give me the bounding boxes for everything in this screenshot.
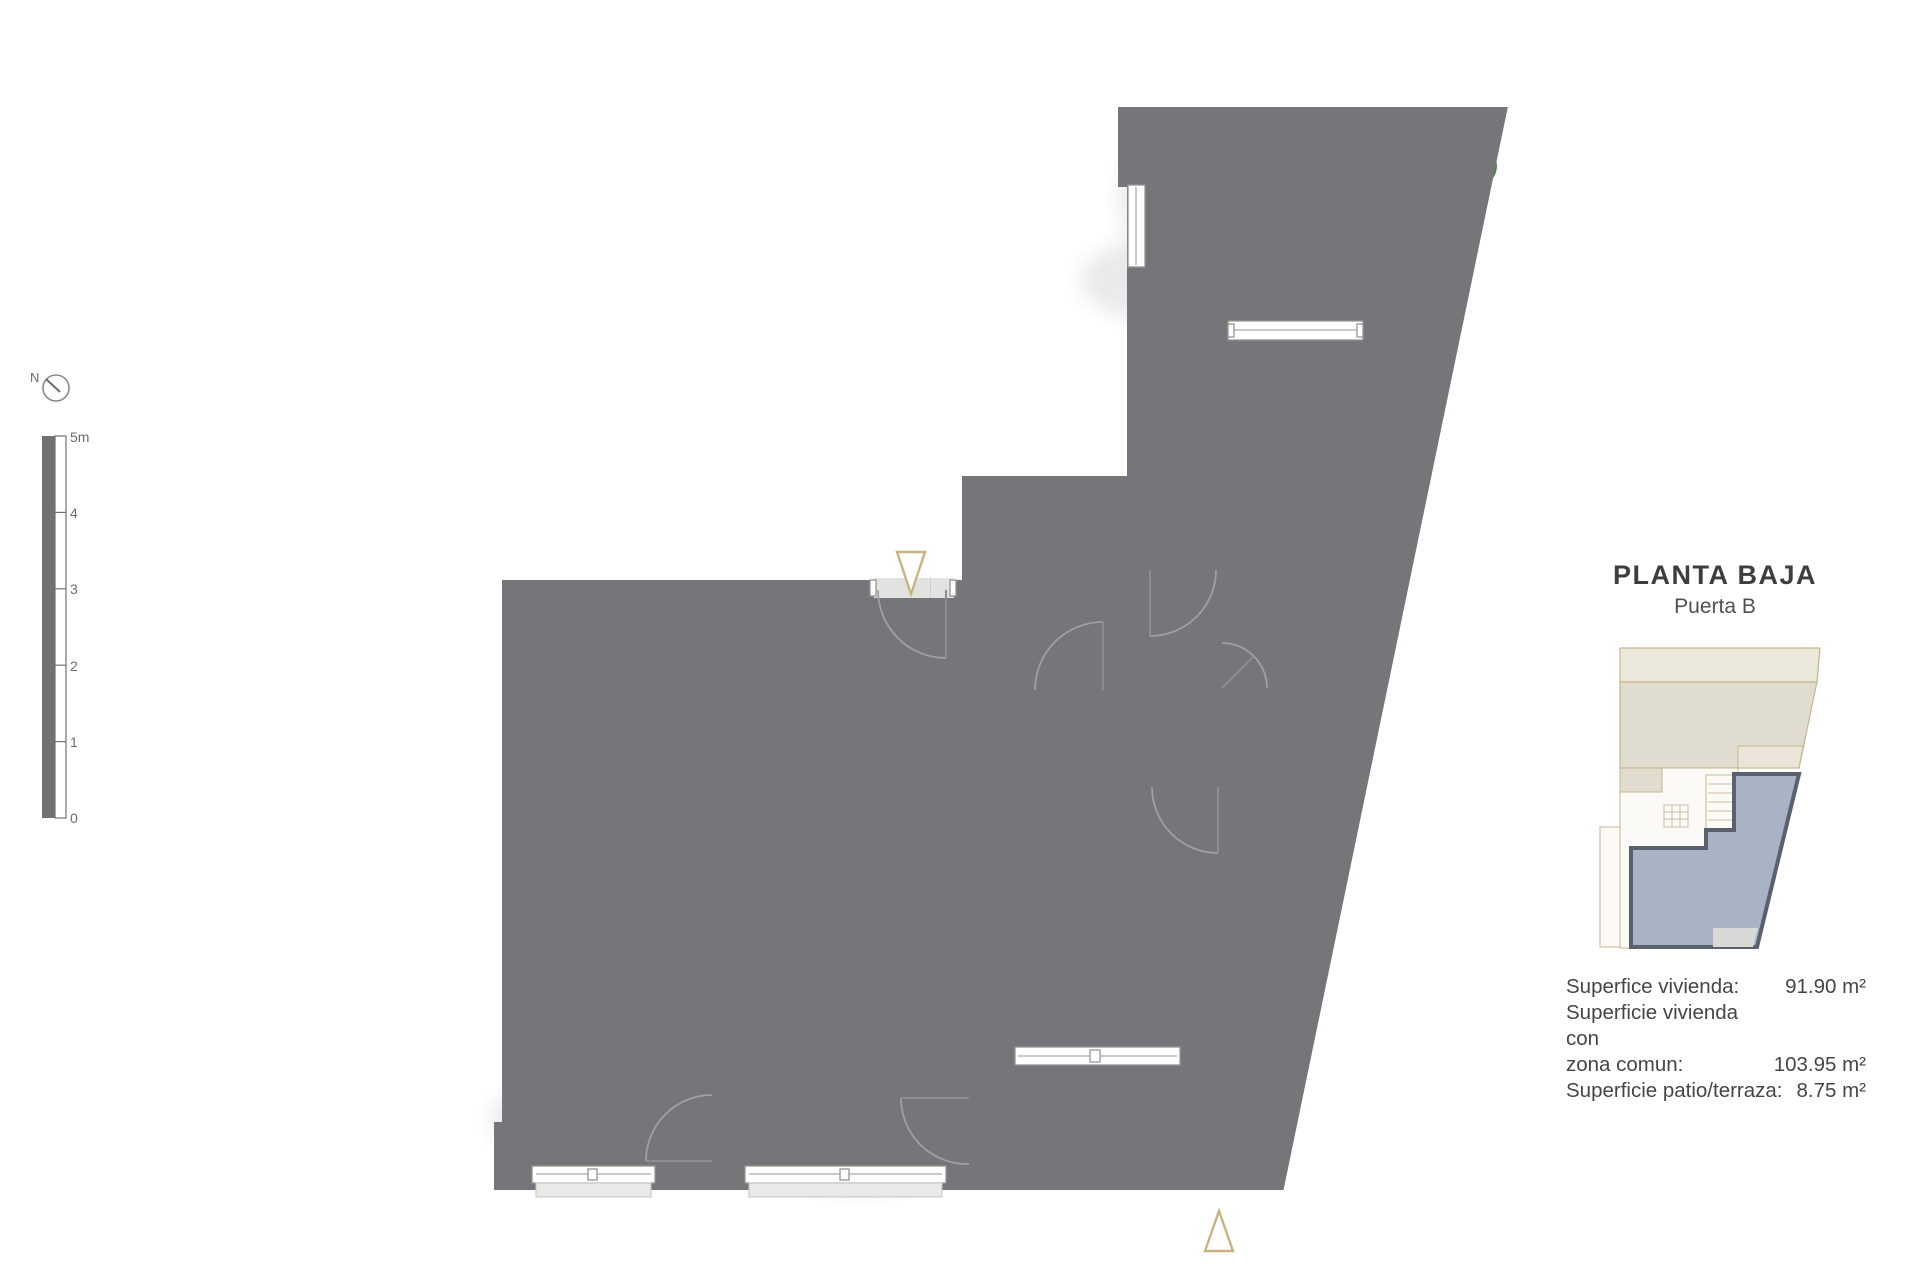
surface-row: Superficie vivienda con zona comun: 103.… [1566,1000,1866,1078]
plan-subtitle: Puerta B [1560,595,1870,619]
scale-tick-label: 3 [70,581,78,597]
bedroom2-right-wall [699,879,712,1095]
scale-tick-label: 1 [70,734,78,750]
walls [494,107,1498,1190]
living-master-divider [963,781,976,1050]
section-marker-icon [1205,1211,1233,1251]
scale-tick-label: 4 [70,505,78,521]
living-window [745,1166,946,1197]
north-compass: N [30,370,69,401]
surface-label-line2: zona comun: [1566,1052,1774,1078]
info-panel: PLANTA BAJA Puerta B [1560,560,1870,619]
bath2-bottom-wall [1216,784,1360,797]
surface-label: Superfice vivienda: [1566,974,1739,1000]
surface-table: Superfice vivienda: 91.90 m² Superficie … [1566,974,1866,1104]
locator-stairs [1706,775,1734,830]
scale-tick-label: 5m [70,429,89,445]
bedroom3-bottom-wall [1216,562,1408,580]
floorplan-page: N 5m 4 3 2 1 0 [0,0,1920,1280]
scale-tick-label: 2 [70,658,78,674]
surface-value: 8.75 m² [1797,1078,1867,1104]
surface-label: Superficie patio/terraza: [1566,1078,1783,1104]
surface-row: Superficie patio/terraza: 8.75 m² [1566,1078,1866,1104]
surface-value: 91.90 m² [1785,974,1866,1000]
bath1-right-wall [1129,484,1143,690]
master-top-wall [963,781,1152,794]
locator-map [1600,648,1820,948]
terrace-side-window [1128,185,1145,267]
bedroom2-window [532,1166,655,1197]
scale-bar: 5m 4 3 2 1 0 [42,429,89,826]
scale-tick-label: 0 [70,810,78,826]
master-patio-window [1015,1047,1180,1065]
plan-title: PLANTA BAJA [1560,560,1870,591]
outer-wall [510,115,1498,1182]
bath1-left-wall [963,588,976,697]
terrace-bedroom-window [1228,321,1363,340]
compass-label: N [30,370,39,385]
bedroom2-top-wall [503,879,712,892]
surface-label: Superficie vivienda con [1566,1000,1774,1052]
surface-value: 103.95 m² [1774,1052,1866,1078]
surface-row: Superfice vivienda: 91.90 m² [1566,974,1866,1000]
